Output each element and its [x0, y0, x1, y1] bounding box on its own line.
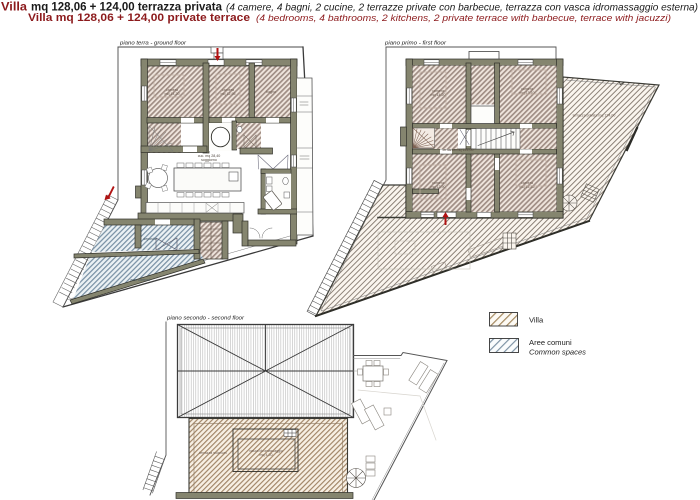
svg-text:mq 14,20: mq 14,20	[165, 92, 180, 96]
svg-text:piano terra - ground floor: piano terra - ground floor	[119, 40, 187, 46]
svg-text:Villa: Villa	[529, 316, 544, 325]
svg-text:mq 12,95: mq 12,95	[221, 92, 236, 96]
svg-text:piano secondo - second floor: piano secondo - second floor	[166, 316, 245, 322]
svg-text:mq 4,20: mq 4,20	[260, 453, 273, 457]
svg-text:mq 13,10: mq 13,10	[520, 91, 535, 95]
svg-text:mq 13,90: mq 13,90	[431, 185, 446, 189]
svg-text:deposito: deposito	[143, 237, 157, 241]
svg-text:bagno: bagno	[266, 90, 276, 94]
svg-text:Aree comuni: Aree comuni	[529, 338, 572, 347]
svg-text:mq 14,35: mq 14,35	[520, 185, 535, 189]
svg-text:terrazza solarium: terrazza solarium	[199, 451, 227, 455]
svg-text:mq 14,20: mq 14,20	[431, 93, 446, 97]
svg-text:piano primo - first floor: piano primo - first floor	[384, 40, 447, 46]
svg-text:Villa mq 128,06 + 124,00 priva: Villa mq 128,06 + 124,00 private terrace	[28, 12, 250, 24]
svg-text:terrazza mq 124,00: terrazza mq 124,00	[443, 148, 474, 152]
svg-text:(4 bedrooms, 4 bathrooms, 2 ki: (4 bedrooms, 4 bathrooms, 2 kitchens, 2 …	[256, 12, 671, 23]
svg-text:soggiorno: soggiorno	[201, 158, 217, 162]
svg-text:Villa: Villa	[1, 0, 27, 13]
svg-text:aree comuni: aree comuni	[130, 278, 150, 282]
svg-text:terrazza privata mq 124,00: terrazza privata mq 124,00	[573, 114, 616, 118]
svg-text:Common spaces: Common spaces	[529, 348, 586, 357]
